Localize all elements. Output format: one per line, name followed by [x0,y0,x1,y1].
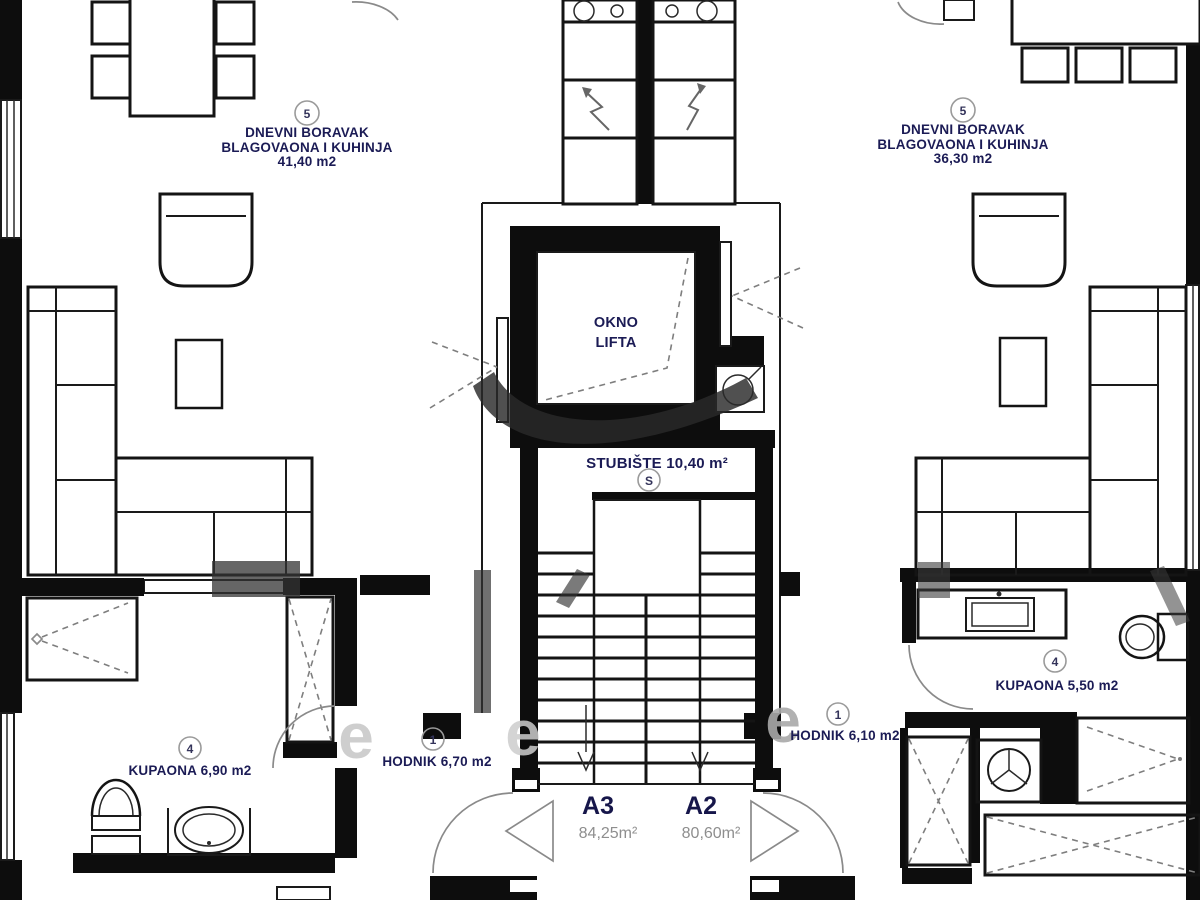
unit-area: 80,60m² [682,825,741,842]
sofa [916,287,1186,575]
window [1,713,14,860]
washing-machine [977,740,1041,802]
room-number: 4 [1052,655,1059,669]
stairs-start-symbol: S [645,474,653,488]
kitchen [898,0,1200,82]
room-number: 1 [835,708,842,722]
bathtub [985,815,1200,875]
kitchen-counter [1012,0,1200,44]
chair [216,56,254,98]
unit-id: A3 [582,792,614,820]
door-arc [898,2,944,24]
window [1186,285,1199,570]
room-number: 5 [960,104,967,118]
cabinet-tall [907,737,970,865]
room-area: 36,30 m2 [934,151,993,166]
window [1,100,21,238]
door-leaf [944,0,974,20]
left-living-label: 5 DNEVNI BORAVAK BLAGOVAONA I KUHINJA 41… [221,101,392,169]
room-name: BLAGOVAONA I KUHINJA [221,140,392,155]
armchair [160,194,252,286]
room-name: BLAGOVAONA I KUHINJA [877,137,1048,152]
entrance-door-arc [763,793,843,873]
bath-right-label: 4 KUPAONA 5,50 m2 [995,650,1118,693]
unit-a3-label: A3 84,25m² [579,792,638,842]
shower-tray [27,598,137,680]
coffee-table [176,340,222,408]
floor-plan: e e e 5 DNEVNI BORAVAK BLAGOVAONA I KUHI… [0,0,1200,900]
room-name: DNEVNI BORAVAK [245,125,369,140]
chair [92,56,130,98]
watermark-letter: e [338,700,374,772]
arrow-right-icon [751,801,798,861]
chair [216,2,254,44]
room-name: DNEVNI BORAVAK [901,122,1025,137]
floor-plan-drawing: e e e 5 DNEVNI BORAVAK BLAGOVAONA I KUHI… [0,0,1200,900]
entrance [433,793,843,873]
room-name: HODNIK 6,10 m2 [790,728,899,743]
elevator-label-line1: OKNO [594,315,638,331]
washbasin [168,807,250,855]
door-arc [352,2,398,20]
dining-table [130,0,214,116]
cabinet [1022,48,1068,82]
toilet [92,780,140,854]
windows [1,100,1199,860]
arrow-left-icon [506,801,553,861]
unit-area: 84,25m² [579,825,638,842]
room-number: 1 [430,733,437,747]
room-name: KUPAONA 6,90 m2 [128,763,251,778]
room-name: HODNIK 6,70 m2 [382,754,491,769]
right-living-furniture [916,194,1186,575]
unit-a2-label: A2 80,60m² [682,792,741,842]
hall-right-label: 1 HODNIK 6,10 m2 [790,703,899,743]
coffee-table [1000,338,1046,406]
washing-machine [287,597,333,742]
watermark-letter: e [505,697,541,769]
room-number: 5 [304,107,311,121]
bath-left-label: 4 KUPAONA 6,90 m2 [128,737,251,778]
staircase [538,500,755,784]
cabinet [1130,48,1176,82]
door-arc [909,645,973,709]
watermark-letter: e [765,684,801,756]
cabinet [1076,48,1122,82]
armchair [973,194,1065,286]
left-living-furniture [28,194,312,575]
door-arc [273,706,335,768]
down-arrow-icon [578,705,594,770]
dining-set [92,0,398,116]
elevator-label-line2: LIFTA [596,335,637,351]
entrance-door-arc [433,793,513,873]
stairs-name: STUBIŠTE 10,40 m² [586,454,728,472]
room-name: KUPAONA 5,50 m2 [995,678,1118,693]
right-living-label: 5 DNEVNI BORAVAK BLAGOVAONA I KUHINJA 36… [877,98,1048,166]
unit-id: A2 [685,792,717,820]
elevator-window-slot [720,242,803,346]
shower-tray [1077,718,1189,803]
chair [92,2,130,44]
sofa [28,287,312,575]
fixture-partial [277,887,330,900]
room-number: 4 [187,742,194,756]
room-area: 41,40 m2 [278,154,337,169]
stairs-label: STUBIŠTE 10,40 m² S [586,454,728,491]
